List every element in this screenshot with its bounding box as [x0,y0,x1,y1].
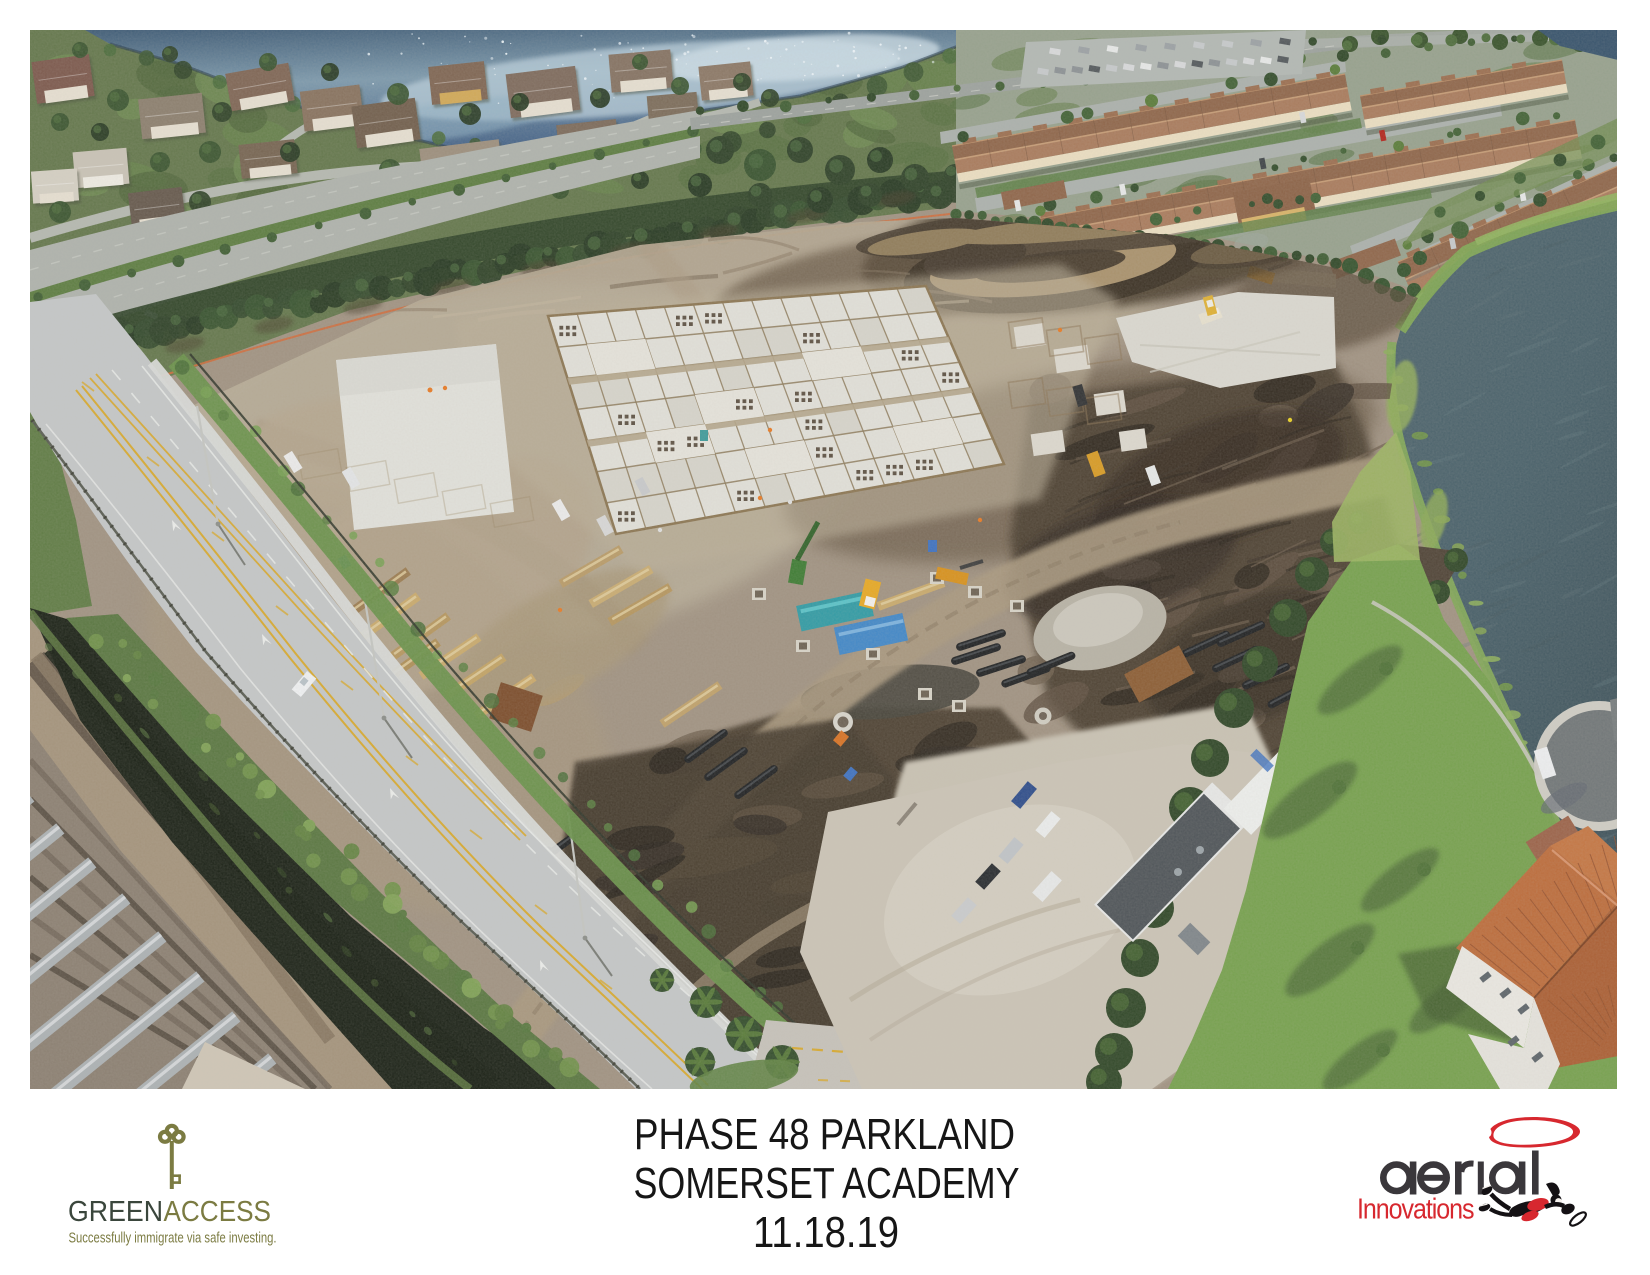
svg-text:Successfully immigrate via saf: Successfully immigrate via safe investin… [69,1230,277,1247]
svg-text:GREEN: GREEN [68,1196,163,1228]
svg-text:Innovations: Innovations [1357,1193,1474,1225]
svg-text:PHASE 48 PARKLAND: PHASE 48 PARKLAND [634,1111,1015,1159]
svg-text:ACCESS: ACCESS [164,1196,272,1228]
svg-text:SOMERSET ACADEMY: SOMERSET ACADEMY [634,1160,1020,1208]
svg-text:11.18.19: 11.18.19 [753,1209,899,1257]
